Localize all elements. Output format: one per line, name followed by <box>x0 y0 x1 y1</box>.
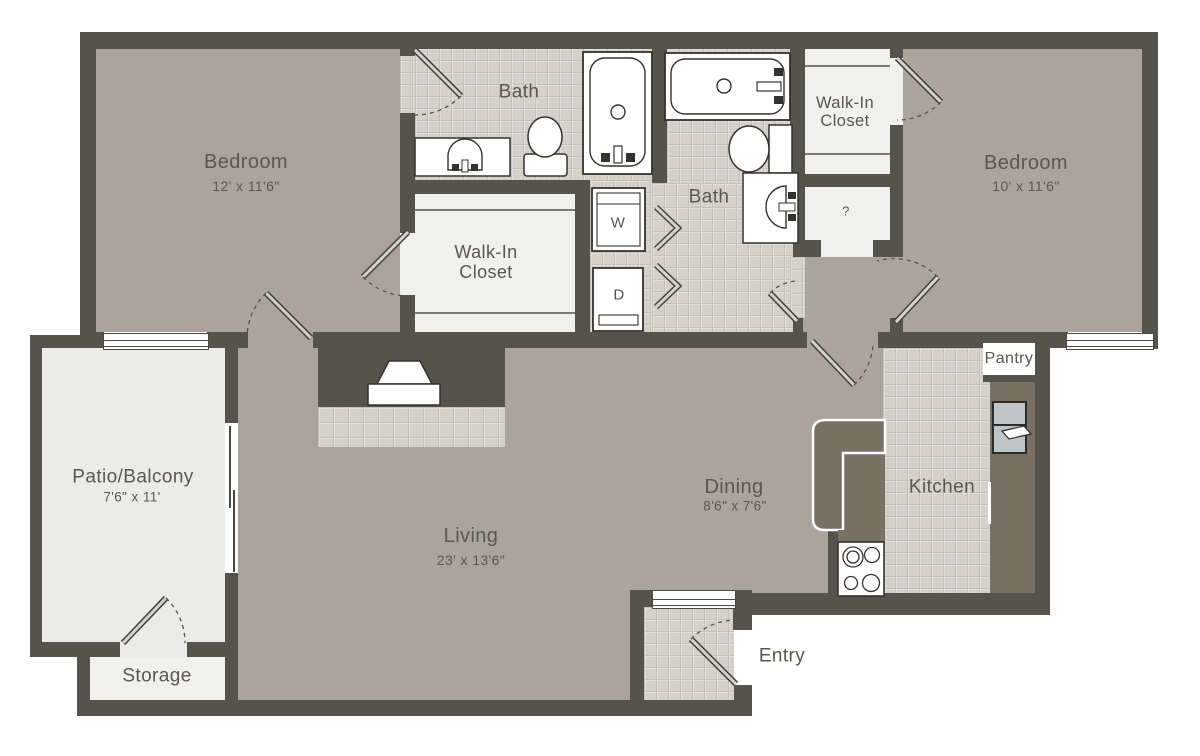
room-label-kitchen: Kitchen <box>909 478 975 497</box>
fireplace-hearth <box>368 384 440 405</box>
room-dims-patio: 7'6" x 11' <box>103 490 160 504</box>
faucet-handle <box>626 153 635 162</box>
faucet-handle <box>471 164 478 171</box>
counter-edge <box>988 482 991 524</box>
fixtures-layer <box>0 0 1200 756</box>
room-dims-dining: 8'6" x 7'6" <box>703 499 766 513</box>
room-label-walk-in-closet-2-line2: Closet <box>820 113 869 130</box>
faucet-spout <box>779 203 795 211</box>
room-label-entry: Entry <box>759 647 805 666</box>
room-label-bath-2: Bath <box>689 188 730 207</box>
room-label-dining: Dining <box>704 477 763 497</box>
room-label-patio: Patio/Balcony <box>72 468 193 487</box>
door-swing <box>166 598 185 643</box>
door-leaf <box>123 598 166 643</box>
door-swing <box>247 293 266 338</box>
door-leaf <box>691 639 736 684</box>
door-leaf <box>896 277 938 322</box>
room-label-bedroom-2: Bedroom <box>984 153 1068 173</box>
door-swing <box>363 277 408 296</box>
washer-label: W <box>611 216 626 231</box>
room-label-bath-1: Bath <box>499 83 540 102</box>
faucet-handle <box>601 153 610 162</box>
toilet-2-icon <box>729 126 769 172</box>
room-dims-bedroom-1: 12' x 11'6" <box>212 179 279 193</box>
room-label-walk-in-closet-1-line2: Closet <box>459 263 512 281</box>
room-dims-bedroom-2: 10' x 11'6" <box>992 179 1059 193</box>
room-label-pantry: Pantry <box>985 351 1034 367</box>
toilet-1-icon <box>528 117 562 157</box>
door-swing <box>415 96 461 115</box>
stove-counter <box>838 530 885 542</box>
door-swing <box>877 259 938 277</box>
faucet-spout <box>757 82 781 91</box>
door-swing <box>770 281 797 293</box>
door-leaf <box>415 50 461 96</box>
door-leaf <box>897 58 941 102</box>
utility-label: ? <box>842 205 850 218</box>
bifold-door <box>656 207 678 249</box>
bifold-door <box>656 265 678 307</box>
faucet-spout <box>462 160 468 172</box>
room-label-storage: Storage <box>122 667 191 686</box>
door-leaf <box>770 293 797 321</box>
room-label-bedroom-1: Bedroom <box>204 152 288 172</box>
faucet-handle <box>788 214 796 221</box>
kitchen-base-cabinet <box>843 453 885 530</box>
faucet-handle <box>774 68 783 76</box>
floor-plan: Bedroom 12' x 11'6" Bedroom 10' x 11'6" … <box>0 0 1200 756</box>
room-label-living: Living <box>444 526 499 546</box>
door-swing <box>897 102 941 120</box>
faucet-handle <box>788 192 796 199</box>
faucet-handle <box>774 96 783 104</box>
door-swing <box>854 345 873 385</box>
dryer-label: D <box>613 288 624 303</box>
door-leaf <box>266 293 311 338</box>
faucet-handle <box>452 164 459 171</box>
toilet-2-tank <box>769 125 792 173</box>
door-swing <box>691 620 736 639</box>
door-leaf <box>363 232 408 277</box>
room-dims-living: 23' x 13'6" <box>437 553 505 567</box>
door-leaf <box>812 341 854 385</box>
fireplace-firebox <box>377 361 432 384</box>
room-label-walk-in-closet-2-line1: Walk-In <box>816 95 874 112</box>
faucet-spout <box>614 146 622 163</box>
room-label-walk-in-closet-1-line1: Walk-In <box>454 243 517 261</box>
